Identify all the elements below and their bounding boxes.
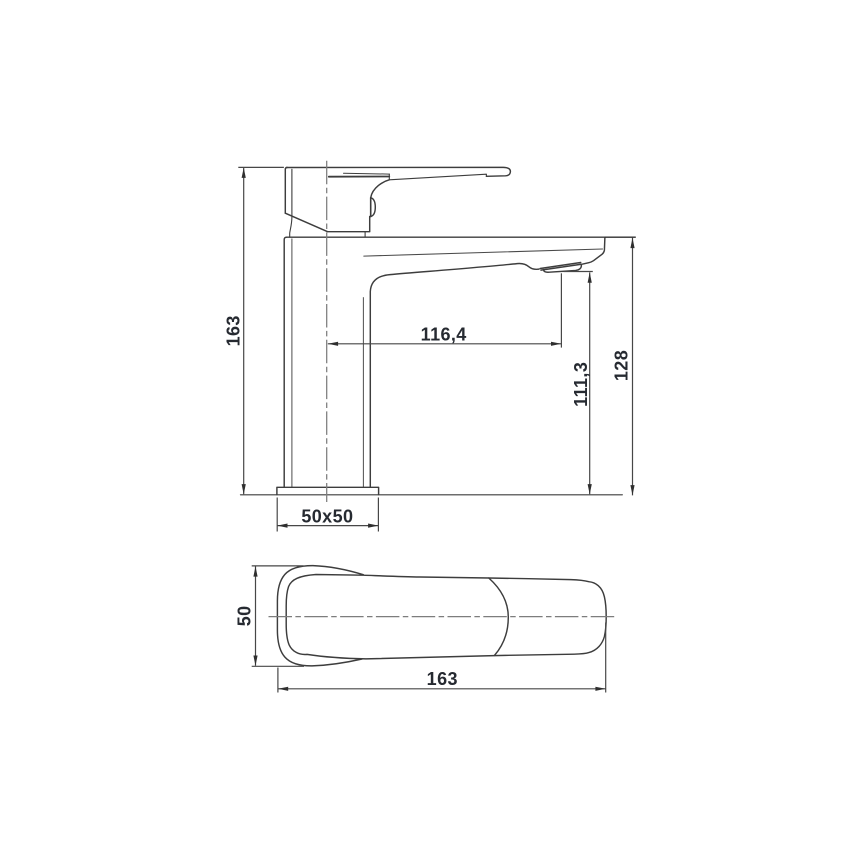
svg-text:111,3: 111,3 xyxy=(571,362,591,407)
svg-text:163: 163 xyxy=(427,669,458,689)
svg-text:50: 50 xyxy=(234,605,254,626)
svg-text:163: 163 xyxy=(224,315,244,346)
svg-text:128: 128 xyxy=(612,350,632,381)
svg-text:50x50: 50x50 xyxy=(301,506,353,526)
svg-text:116,4: 116,4 xyxy=(421,325,467,345)
